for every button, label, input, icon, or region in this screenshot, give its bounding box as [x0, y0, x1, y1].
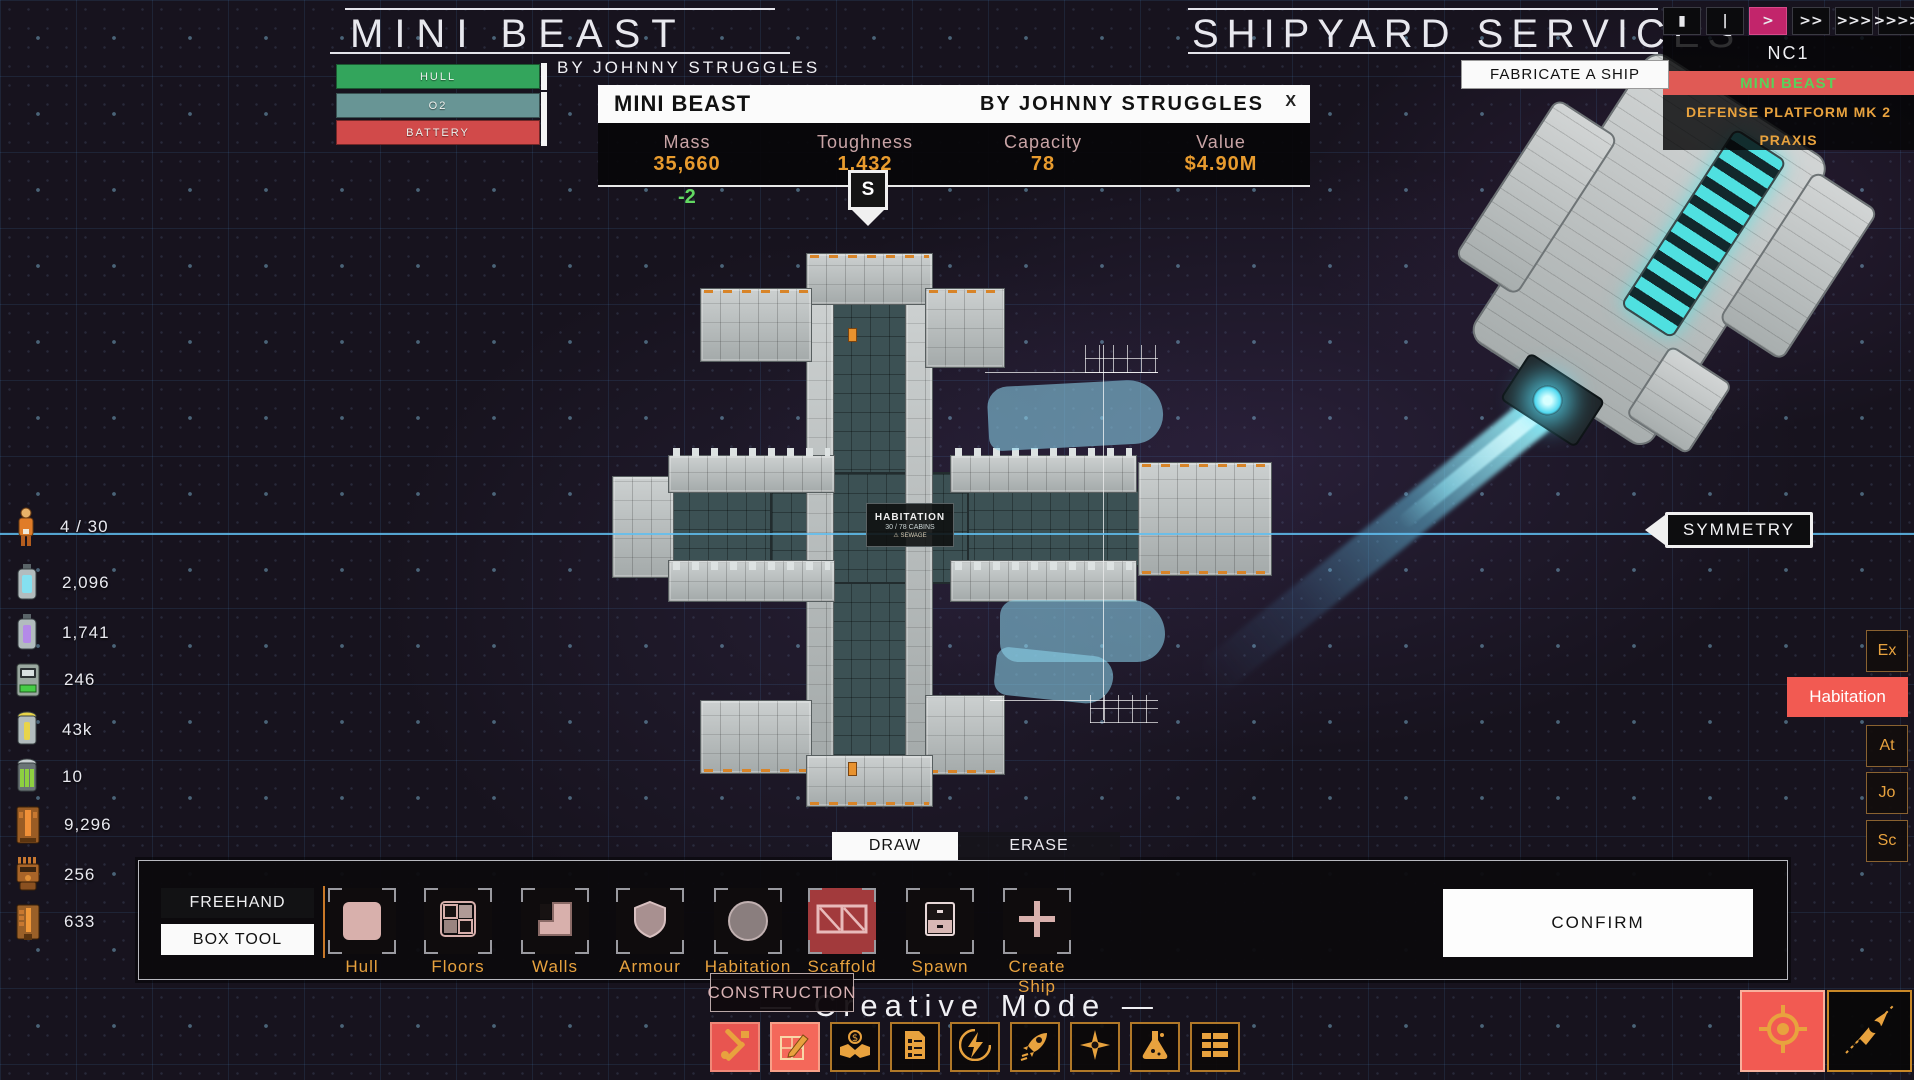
- hull-tool-button[interactable]: [328, 888, 396, 954]
- coolant-cell-icon: [14, 563, 40, 603]
- toolbar-divider: [323, 886, 325, 958]
- confirm-button[interactable]: CONFIRM: [1443, 889, 1753, 957]
- stat-value: $4.90M: [1185, 153, 1258, 176]
- delta-indicator: -2: [678, 186, 696, 209]
- battery-pack-icon: [14, 661, 42, 699]
- gold-cell-icon: [14, 710, 40, 750]
- resource-value: 10: [62, 767, 83, 787]
- speed-2x-button[interactable]: >>: [1792, 7, 1830, 35]
- step-button[interactable]: |: [1706, 7, 1744, 35]
- hull-pod: [668, 455, 835, 493]
- resource-value: 2,096: [62, 573, 110, 593]
- floors-tool-button[interactable]: [424, 888, 492, 954]
- tool-label: Walls: [507, 957, 603, 977]
- battery-bar: BATTERY: [336, 120, 540, 145]
- speed-3x-button[interactable]: >>>: [1835, 7, 1873, 35]
- draw-tab[interactable]: DRAW: [832, 832, 958, 860]
- tool-label: Armour: [602, 957, 698, 977]
- crew-sprite: [848, 328, 857, 342]
- hull-top-cap: [806, 253, 933, 305]
- arrow-left-icon: [1645, 515, 1665, 545]
- stat-mass: Mass 35,660: [598, 123, 776, 185]
- room-title: HABITATION: [875, 512, 945, 523]
- list-grid-icon: [1200, 1030, 1230, 1065]
- hull-icon: [343, 902, 381, 940]
- stat-value: Value $4.90M: [1132, 123, 1310, 185]
- research-menu-button[interactable]: [1130, 1022, 1180, 1072]
- hull-bottom-cap: [806, 755, 933, 807]
- hull-pod: [925, 288, 1005, 368]
- crew-sprite: [848, 762, 857, 776]
- ship-nav-icon: [1842, 1001, 1898, 1062]
- resource-value: 633: [64, 912, 95, 932]
- flask-icon: [1140, 1029, 1170, 1066]
- room-warning: ⚠ SEWAGE: [893, 532, 926, 539]
- fleet-panel: NC1 MINI BEAST DEFENSE PLATFORM MK 2 PRA…: [1663, 36, 1914, 150]
- edit-blueprint-button[interactable]: [770, 1022, 820, 1072]
- habitation-icon: [728, 901, 768, 941]
- tool-label: Spawn: [892, 957, 988, 977]
- symmetry-toggle[interactable]: SYMMETRY: [1645, 512, 1813, 548]
- resource-value: 9,296: [64, 815, 112, 835]
- play-button[interactable]: >: [1749, 7, 1787, 35]
- scaffold-tool-button[interactable]: [808, 888, 876, 954]
- walls-icon: [536, 900, 574, 943]
- fleet-name: NC1: [1663, 43, 1914, 64]
- stat-label: Toughness: [817, 132, 913, 153]
- resource-value: 1,741: [62, 623, 110, 643]
- shipyard-title: SHIPYARD SERVICES: [1192, 12, 1742, 57]
- plus-icon: [1016, 898, 1058, 945]
- crew-icon: [14, 505, 38, 549]
- tools-icon: [719, 1029, 751, 1066]
- contracts-menu-button[interactable]: [890, 1022, 940, 1072]
- bar-cap: [541, 92, 547, 119]
- hull-right-cap: [1138, 462, 1272, 576]
- energy-cell-icon: [14, 757, 40, 797]
- symmetry-label: SYMMETRY: [1665, 512, 1813, 548]
- scaffold-grid: [1085, 345, 1158, 373]
- hull-pod: [950, 455, 1137, 493]
- resource-value: 246: [64, 670, 95, 690]
- resource-row: 1,741: [14, 611, 110, 655]
- stat-label: Value: [1196, 132, 1246, 153]
- habitation-room-label: HABITATION 30 / 78 CABINS ⚠ SEWAGE: [866, 503, 954, 547]
- stats-panel-header: MINI BEAST BY JOHNNY STRUGGLES X: [598, 85, 1310, 123]
- create-ship-tool-button[interactable]: [1003, 888, 1071, 954]
- scaffold-icon: [816, 904, 868, 939]
- resource-row: 246: [14, 658, 95, 702]
- resource-row-crew: 4 / 30: [14, 505, 109, 549]
- ship-title: MINI BEAST: [350, 12, 687, 57]
- document-icon: [901, 1029, 929, 1066]
- hull-pod: [700, 288, 812, 362]
- trade-menu-button[interactable]: $: [830, 1022, 880, 1072]
- close-icon[interactable]: X: [1285, 93, 1296, 111]
- build-toolbar: FREEHAND BOX TOOL: [138, 860, 1788, 980]
- erase-tab[interactable]: ERASE: [958, 832, 1120, 860]
- stat-label: Capacity: [1004, 132, 1082, 153]
- resource-row: 43k: [14, 708, 92, 752]
- resource-value: 256: [64, 865, 95, 885]
- rocket-icon: [1019, 1029, 1051, 1066]
- inventory-menu-button[interactable]: [1190, 1022, 1240, 1072]
- side-tab-habitation[interactable]: Habitation: [1787, 677, 1908, 717]
- spawn-marker[interactable]: S: [848, 170, 888, 210]
- construction-tooltip: CONSTRUCTION: [710, 973, 854, 1012]
- resource-row: 2,096: [14, 561, 110, 605]
- hull-bar-label: HULL: [420, 71, 456, 83]
- resource-row: 633: [14, 900, 95, 944]
- hull-bar: HULL: [336, 64, 540, 89]
- symmetry-axis-line: [0, 533, 1914, 535]
- target-mode-button[interactable]: [1740, 990, 1825, 1072]
- title-rule: [1188, 8, 1658, 10]
- room-cabins: 30 / 78 CABINS: [885, 524, 934, 531]
- svg-text:$: $: [852, 1033, 858, 1044]
- fleet-entry-praxis[interactable]: PRAXIS: [1663, 129, 1914, 151]
- lightning-icon: [959, 1029, 991, 1066]
- game-screen: HABITATION 30 / 78 CABINS ⚠ SEWAGE MINI …: [0, 0, 1914, 1080]
- freehand-button[interactable]: FREEHAND: [161, 888, 314, 918]
- stats-panel-body: Mass 35,660 Toughness 1,432 Capacity 78 …: [598, 123, 1310, 187]
- power-menu-button[interactable]: [950, 1022, 1000, 1072]
- hull-left-cap: [612, 476, 674, 578]
- stat-label: Mass: [663, 132, 710, 153]
- bar-cap: [541, 119, 547, 146]
- resource-row: 10: [14, 755, 83, 799]
- bar-cap: [541, 63, 547, 90]
- fleet-entry-defense-platform[interactable]: DEFENSE PLATFORM MK 2: [1663, 101, 1914, 123]
- fuel-cell-icon: [14, 613, 40, 653]
- side-tab-at[interactable]: At: [1866, 725, 1908, 767]
- resource-value: 43k: [62, 720, 92, 740]
- armour-tool-button[interactable]: [616, 888, 684, 954]
- compass-icon: [1079, 1029, 1111, 1066]
- navigation-menu-button[interactable]: [1070, 1022, 1120, 1072]
- walls-tool-button[interactable]: [521, 888, 589, 954]
- title-rule: [345, 8, 775, 10]
- thrusters-menu-button[interactable]: [1010, 1022, 1060, 1072]
- o2-bar-label: O2: [429, 100, 448, 112]
- title-rule: [1188, 52, 1658, 54]
- machine-part-icon: [14, 855, 42, 895]
- battery-bar-label: BATTERY: [406, 127, 470, 139]
- time-controls: ▮ | > >> >>> >>>>: [1663, 7, 1914, 35]
- stats-panel-byline: BY JOHNNY STRUGGLES: [980, 93, 1264, 116]
- box-tool-button[interactable]: BOX TOOL: [161, 924, 314, 955]
- spawn-icon: [923, 900, 957, 943]
- resource-row: 9,296: [14, 803, 112, 847]
- hull-pod: [668, 560, 835, 602]
- stat-value: 35,660: [653, 153, 720, 176]
- speed-4x-button[interactable]: >>>>: [1878, 7, 1914, 35]
- bottom-menu: $: [710, 1022, 1240, 1072]
- resource-row: 256: [14, 853, 95, 897]
- ghost-module-blob: [986, 378, 1164, 451]
- side-tab-ex[interactable]: Ex: [1866, 630, 1908, 672]
- build-menu-button[interactable]: [710, 1022, 760, 1072]
- ship-byline: BY JOHNNY STRUGGLES: [557, 58, 820, 78]
- hull-pod: [950, 560, 1137, 602]
- reactor-part-icon: [14, 804, 42, 846]
- resource-value: 4 / 30: [60, 517, 109, 537]
- tool-label: Hull: [314, 957, 410, 977]
- spawn-marker-pointer: [852, 210, 884, 226]
- scaffold-grid: [1090, 695, 1158, 723]
- engine-part-icon: [14, 901, 42, 943]
- hull-pod: [700, 700, 812, 774]
- spawn-tool-button[interactable]: [906, 888, 974, 954]
- navigate-ship-button[interactable]: [1827, 990, 1912, 1072]
- side-tab-sc[interactable]: Sc: [1866, 820, 1908, 862]
- crosshair-icon: [1757, 1003, 1809, 1060]
- hull-pod: [925, 695, 1005, 775]
- tool-label: Floors: [410, 957, 506, 977]
- fabricate-ship-button[interactable]: FABRICATE A SHIP: [1461, 60, 1669, 89]
- handshake-icon: $: [838, 1029, 872, 1066]
- armour-shield-icon: [632, 900, 668, 943]
- pencil-grid-icon: [779, 1029, 811, 1066]
- hull-strip-left: [806, 300, 834, 762]
- o2-bar: O2: [336, 93, 540, 118]
- side-tab-jo[interactable]: Jo: [1866, 772, 1908, 814]
- floors-icon: [439, 900, 477, 943]
- habitation-tool-button[interactable]: [714, 888, 782, 954]
- pause-button[interactable]: ▮: [1663, 7, 1701, 35]
- stats-panel-title: MINI BEAST: [614, 91, 751, 117]
- stat-value: 78: [1031, 153, 1055, 176]
- fleet-entry-mini-beast[interactable]: MINI BEAST: [1663, 71, 1914, 95]
- title-rule: [330, 52, 790, 54]
- stat-capacity: Capacity 78: [954, 123, 1132, 185]
